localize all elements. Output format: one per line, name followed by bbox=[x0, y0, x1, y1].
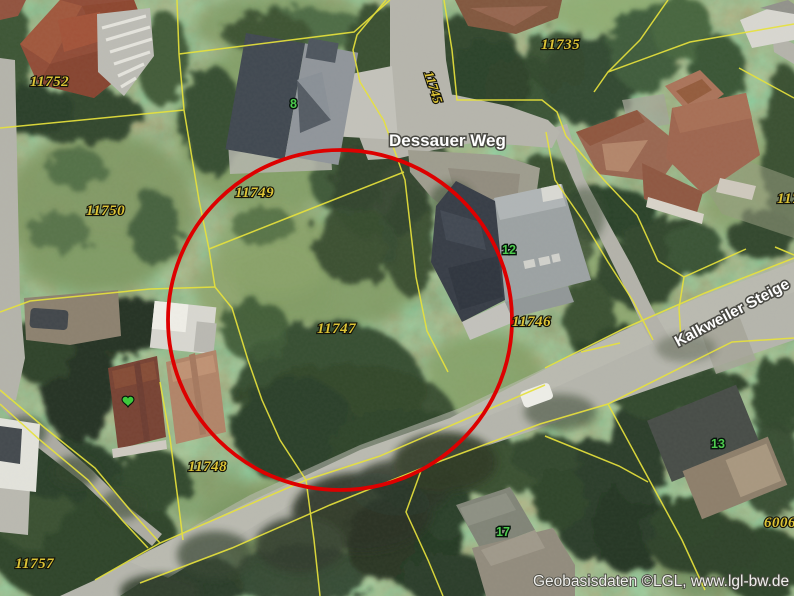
svg-text:11748: 11748 bbox=[188, 459, 227, 475]
svg-text:11757: 11757 bbox=[15, 556, 54, 572]
svg-text:11750: 11750 bbox=[86, 203, 125, 219]
svg-text:11747: 11747 bbox=[317, 321, 356, 337]
svg-text:12: 12 bbox=[502, 243, 516, 257]
svg-text:11746: 11746 bbox=[512, 314, 551, 330]
svg-text:117: 117 bbox=[777, 191, 794, 207]
svg-text:11752: 11752 bbox=[30, 74, 69, 90]
svg-text:11749: 11749 bbox=[235, 185, 274, 201]
svg-text:13: 13 bbox=[711, 437, 725, 451]
svg-text:17: 17 bbox=[496, 525, 510, 539]
svg-text:Dessauer Weg: Dessauer Weg bbox=[389, 131, 506, 150]
svg-text:Geobasisdaten ©LGL, www.lgl-bw: Geobasisdaten ©LGL, www.lgl-bw.de bbox=[533, 573, 789, 590]
svg-text:6006: 6006 bbox=[764, 515, 794, 531]
svg-text:8: 8 bbox=[290, 97, 297, 111]
svg-text:11735: 11735 bbox=[541, 37, 580, 53]
